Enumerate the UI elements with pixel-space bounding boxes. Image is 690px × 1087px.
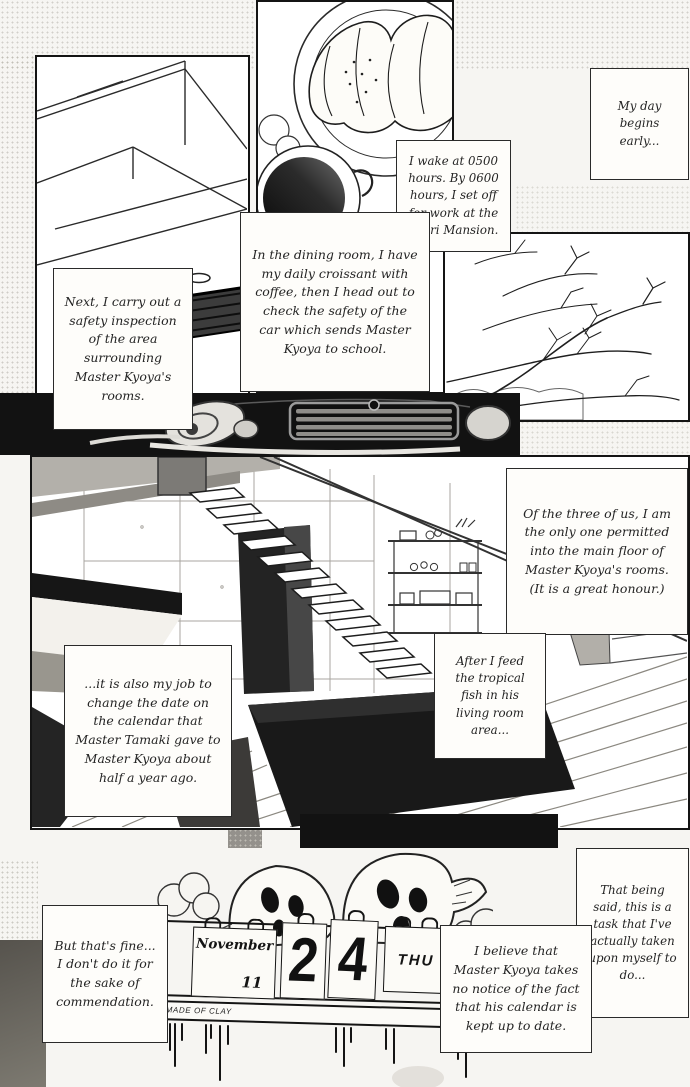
caption-believe: I believe that Master Kyoya takes no not…: [440, 925, 592, 1053]
caption-inspection: Next, I carry out a safety inspection of…: [53, 268, 193, 430]
binder-ring-icon: [247, 918, 264, 930]
bottom-left-wedge: [0, 940, 46, 1087]
manga-page: November 11 2 4 THU MADE OF CLAY My day …: [0, 0, 690, 1087]
calendar-month-label: November: [193, 936, 276, 955]
binder-ring-icon: [348, 910, 365, 922]
binder-ring-icon: [394, 916, 411, 928]
caption-that-being-said: That being said, this is a task that I'v…: [576, 848, 689, 1018]
caption-thats-fine: But that's fine... I don't do it for the…: [42, 905, 168, 1043]
binder-ring-icon: [297, 913, 314, 925]
maker-label: MADE OF CLAY: [166, 1005, 232, 1016]
calendar-day-small: 11: [241, 973, 262, 992]
calendar-card-digit-ones: 4: [327, 919, 378, 1000]
calendar-digit-ones: 4: [330, 920, 377, 998]
caption-dining: In the dining room, I have my daily croi…: [240, 212, 430, 392]
binder-ring-icon: [421, 917, 438, 929]
binder-ring-icon: [204, 917, 221, 929]
caption-my-day: My day begins early...: [590, 68, 689, 180]
caption-feed-fish: After I feed the tropical fish in his li…: [434, 633, 546, 759]
calendar-weekday-label: THU: [384, 927, 448, 993]
clay-drips-art: [158, 1020, 478, 1087]
caption-calendar-job: ...it is also my job to change the date …: [64, 645, 232, 817]
calendar-digit-tens: 2: [282, 923, 326, 998]
caption-three-of-us: Of the three of us, I am the only one pe…: [506, 468, 688, 635]
tone-left-margin: [0, 55, 36, 400]
calendar-card-month: November 11: [191, 927, 277, 1000]
calendar-card-digit-tens: 2: [280, 922, 328, 1000]
